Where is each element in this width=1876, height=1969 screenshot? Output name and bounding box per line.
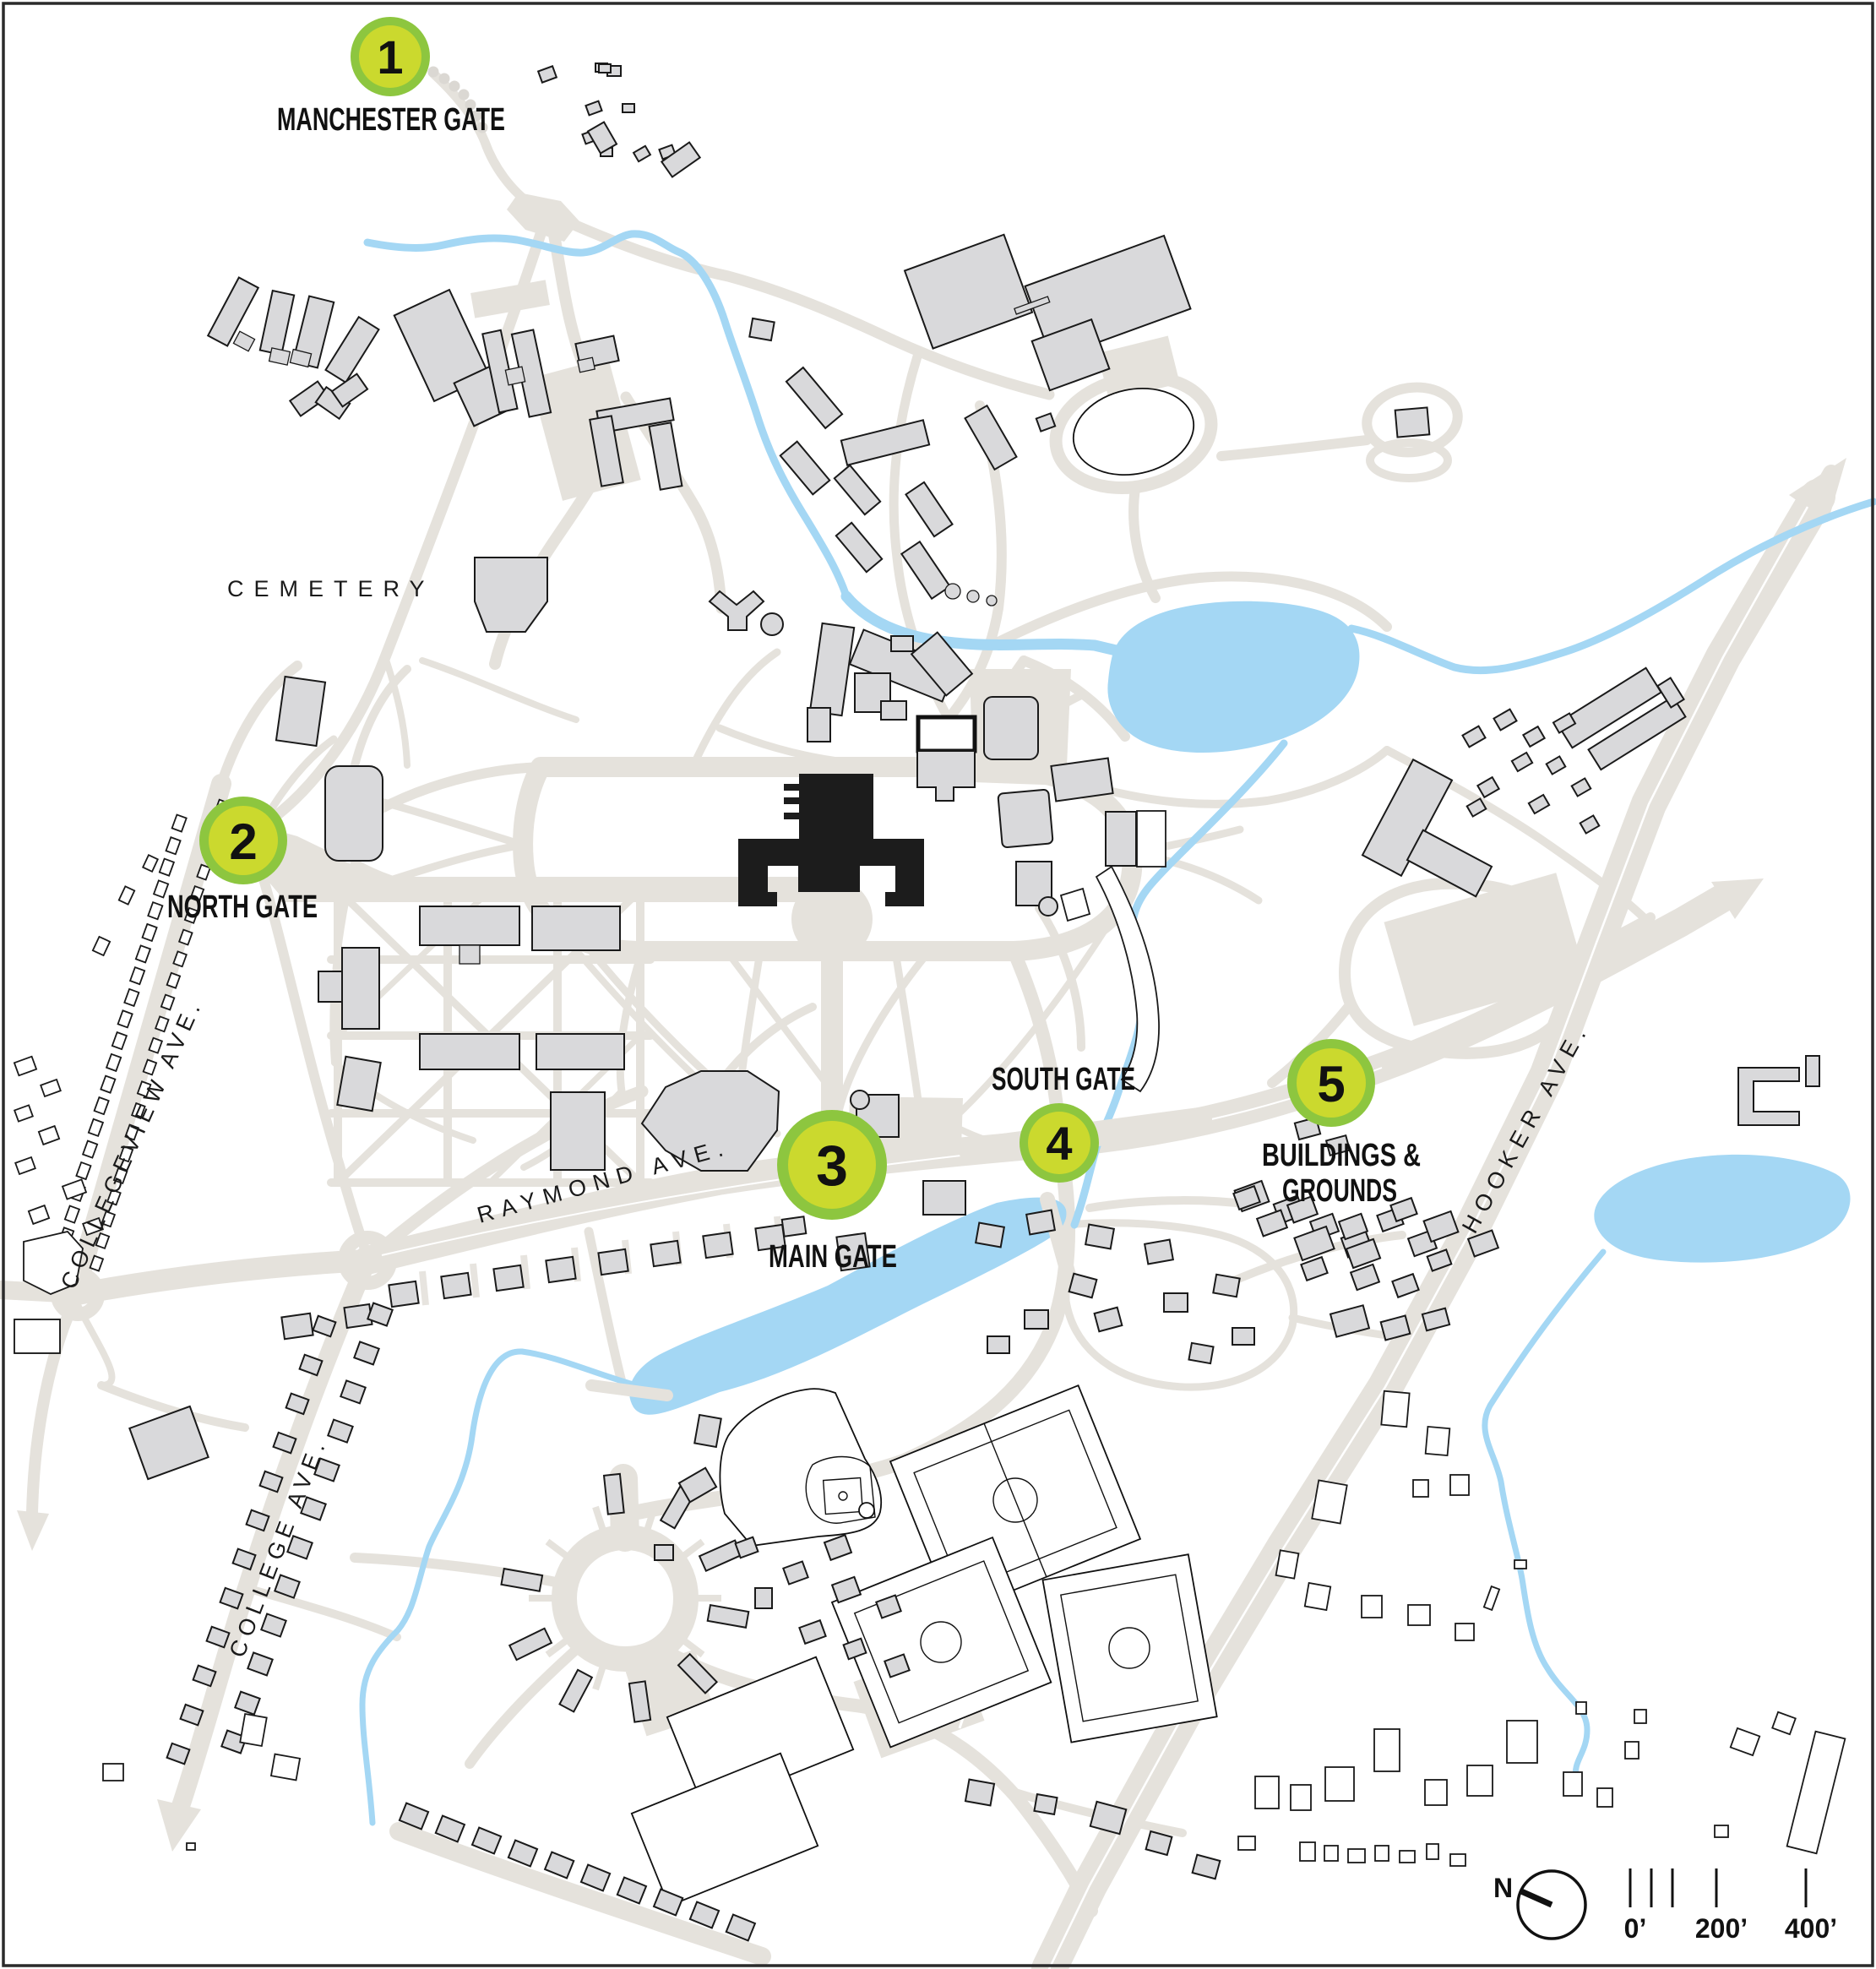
svg-text:3: 3	[816, 1134, 848, 1198]
svg-text:5: 5	[1317, 1056, 1345, 1112]
svg-text:N: N	[1493, 1873, 1513, 1903]
svg-text:0’: 0’	[1624, 1913, 1647, 1944]
svg-text:MANCHESTER GATE: MANCHESTER GATE	[277, 102, 505, 138]
svg-text:2: 2	[229, 813, 257, 870]
svg-text:NORTH GATE: NORTH GATE	[167, 889, 318, 925]
svg-text:200’: 200’	[1695, 1913, 1748, 1944]
svg-text:4: 4	[1046, 1117, 1072, 1170]
svg-text:BUILDINGS &: BUILDINGS &	[1262, 1138, 1421, 1173]
svg-text:GROUNDS: GROUNDS	[1282, 1173, 1397, 1209]
svg-text:CEMETERY: CEMETERY	[227, 576, 435, 601]
svg-text:MAIN GATE: MAIN GATE	[769, 1239, 897, 1275]
svg-text:1: 1	[377, 30, 403, 84]
svg-text:400’: 400’	[1785, 1913, 1837, 1944]
svg-text:SOUTH GATE: SOUTH GATE	[992, 1062, 1135, 1097]
